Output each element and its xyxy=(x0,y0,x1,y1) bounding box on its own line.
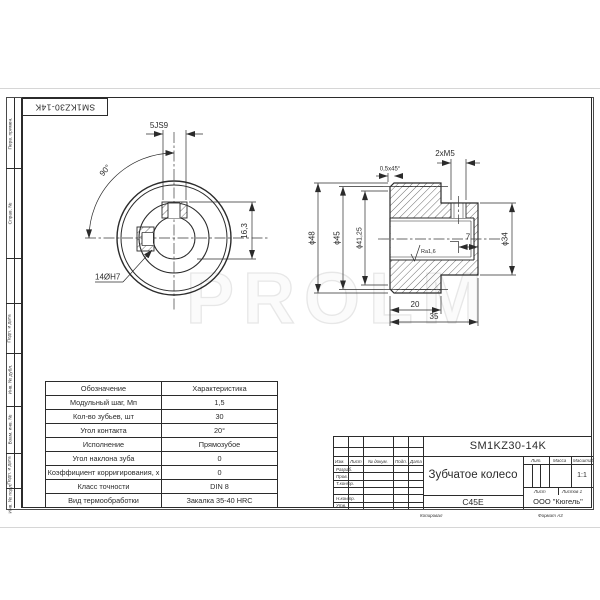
tb-line xyxy=(540,464,541,487)
tb-row-prov: Пров. xyxy=(336,474,348,479)
dim-d4125-text: ϕ41,25 xyxy=(357,227,364,249)
param-label: Кол-во зубьев, шт xyxy=(46,410,162,424)
param-value: 30 xyxy=(162,410,278,424)
tb-company: ООО "Кюгель" xyxy=(523,495,593,509)
dim-7-text: 7 xyxy=(466,233,471,242)
tb-part-name: Зубчатое колесо xyxy=(423,456,523,495)
tb-col-izm: Изм. xyxy=(335,459,345,464)
engineering-drawing-sheet: PROLM Перв. примен. Справ. № Подп. и дат… xyxy=(0,0,600,600)
roughness-text: Ra1,6 xyxy=(421,249,436,255)
param-value: 1,5 xyxy=(162,396,278,410)
front-view-centerlines xyxy=(85,132,268,310)
tb-sheets-label: Листов 1 xyxy=(562,489,582,494)
table-row: Модульный шаг, Мп1,5 xyxy=(46,396,278,410)
header-designation: Обозначение xyxy=(46,382,162,396)
dim-keyway-width-text: 5JS9 xyxy=(150,121,169,130)
margin-strip-sprav-no: Справ. № xyxy=(6,168,15,258)
tb-scale-value: 1:1 xyxy=(571,464,593,487)
title-block: Изм. Лист № докум. Подп. Дата Разраб. Пр… xyxy=(333,436,592,508)
dim-chamfer-text: 0,5x45° xyxy=(380,167,401,173)
section-view: ϕ48 ϕ45 ϕ41,25 ϕ34 2xM5 xyxy=(300,140,530,335)
gear-parameters-table: Обозначение Характеристика Модульный шаг… xyxy=(45,381,278,508)
tb-line xyxy=(558,487,559,495)
param-label: Коэффициент корригирования, х xyxy=(46,466,162,480)
tb-material: C45E xyxy=(423,495,523,509)
table-row: Коэффициент корригирования, х0 xyxy=(46,466,278,480)
param-value: DIN 8 xyxy=(162,480,278,494)
dim-keyway-depth-text: 16,3 xyxy=(240,223,249,239)
tb-header-mass: Масса xyxy=(553,458,566,463)
param-label: Угол контакта xyxy=(46,424,162,438)
tb-row-nkontr: Н.контр. xyxy=(336,496,355,501)
setscrew-section xyxy=(137,227,154,251)
margin-strip-inv-dubl: Инв. № дубл. xyxy=(6,353,15,406)
table-row: Кол-во зубьев, шт30 xyxy=(46,410,278,424)
tb-row-utv: Утв. xyxy=(336,503,346,508)
table-row: Угол контакта20° xyxy=(46,424,278,438)
table-row: Класс точностиDIN 8 xyxy=(46,480,278,494)
paper-edge-bottom xyxy=(0,527,600,528)
tb-line xyxy=(532,464,533,487)
table-row: Вид термообработкиЗакалка 35-40 HRC xyxy=(46,494,278,508)
tb-header-scale: Масштаб xyxy=(573,458,594,463)
param-value: 0 xyxy=(162,452,278,466)
tb-sheet-label: Лист xyxy=(534,489,546,494)
param-label: Модульный шаг, Мп xyxy=(46,396,162,410)
table-row: ИсполнениеПрямозубое xyxy=(46,438,278,452)
dim-thread-text: 2xM5 xyxy=(435,149,455,158)
tb-col-data: Дата xyxy=(410,459,422,464)
dim-d48-text: ϕ48 xyxy=(308,231,317,245)
param-value: 20° xyxy=(162,424,278,438)
tb-line xyxy=(334,487,423,488)
tb-line xyxy=(334,447,423,448)
dim-angle-text: 90° xyxy=(98,163,113,178)
dim-bore-text: 14ØH7 xyxy=(95,273,121,282)
tb-row-razrab: Разраб. xyxy=(336,467,352,472)
tb-col-list: Лист xyxy=(350,459,362,464)
margin-strip-vzam-inv: Взам. инв. № xyxy=(6,406,15,453)
tb-line xyxy=(334,502,423,503)
param-label: Вид термообработки xyxy=(46,494,162,508)
footer-format: Формат А3 xyxy=(538,513,563,518)
dim-d45-text: ϕ45 xyxy=(333,231,342,245)
dim-chamfer xyxy=(376,173,400,182)
tb-line xyxy=(549,456,550,487)
front-view: 5JS9 90° 16,3 14ØH7 xyxy=(55,110,295,325)
dim-d34-text: ϕ34 xyxy=(501,232,510,246)
table-header-row: Обозначение Характеристика xyxy=(46,382,278,396)
margin-strip-perv-primen: Перв. примен. xyxy=(6,98,15,168)
tb-header-lit: Лит. xyxy=(531,458,542,463)
tb-designation: SM1KZ30-14K xyxy=(423,437,593,456)
paper-edge-top xyxy=(0,88,600,89)
param-label: Исполнение xyxy=(46,438,162,452)
param-value: Закалка 35-40 HRC xyxy=(162,494,278,508)
param-value: Прямозубое xyxy=(162,438,278,452)
tb-col-docnum: № докум. xyxy=(368,459,388,464)
param-value: 0 xyxy=(162,466,278,480)
dim-thread xyxy=(437,159,480,200)
header-characteristic: Характеристика xyxy=(162,382,278,396)
strip-sep xyxy=(6,258,22,259)
dim-d4125 xyxy=(361,191,388,285)
dim-d48 xyxy=(314,183,388,293)
dim-angle-arc xyxy=(89,153,174,238)
margin-strip-inv-podl: Инв. № подл. xyxy=(6,488,15,508)
tb-row-tkontr: Т.контр. xyxy=(336,481,354,486)
footer-copied: Копировал xyxy=(420,513,442,518)
dim-20-text: 20 xyxy=(411,300,420,309)
param-label: Угол наклона зуба xyxy=(46,452,162,466)
margin-strip-podp-data-1: Подп. и дата xyxy=(6,303,15,353)
keyway-section xyxy=(162,202,187,218)
dim-35-text: 35 xyxy=(430,312,439,321)
param-label: Класс точности xyxy=(46,480,162,494)
table-row: Угол наклона зуба0 xyxy=(46,452,278,466)
tb-col-podp: Подп. xyxy=(395,459,407,464)
